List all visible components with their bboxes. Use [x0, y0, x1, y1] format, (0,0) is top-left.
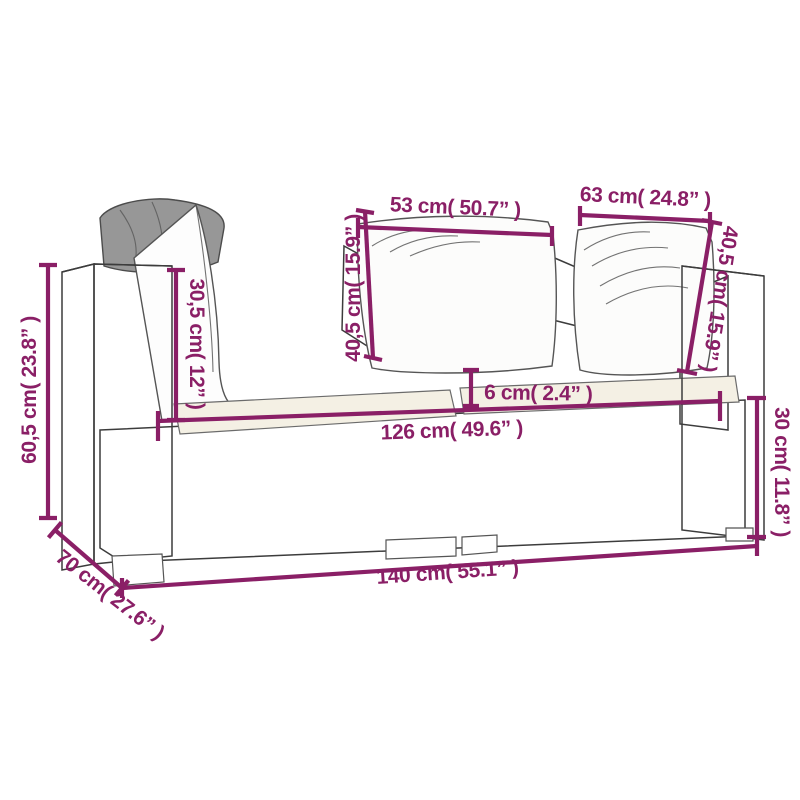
back-pillow-right — [574, 222, 714, 375]
sofa-drawing — [62, 199, 764, 586]
sofa-foot — [462, 535, 497, 555]
dimension-line-seat-width-right — [580, 215, 710, 221]
dimension-label-base-height: 30 cm( 11.8” ) — [770, 407, 793, 537]
sofa-foot — [112, 554, 164, 586]
dimension-label-inner-width: 126 cm( 49.6” ) — [380, 417, 523, 445]
dimension-label-armrest-height: 30,5 cm( 12” ) — [185, 279, 208, 410]
diagram-canvas: 53 cm( 50.7” ) 63 cm( 24.8” ) 30,5 cm( 1… — [0, 0, 800, 800]
dimension-label-back-height-center: 40,5 cm( 15.9” ) — [342, 214, 365, 362]
dimension-label-overall-height: 60,5 cm( 23.8” ) — [18, 316, 41, 464]
sofa-foot — [386, 537, 456, 559]
left-armrest-side-face — [62, 264, 94, 570]
dimension-label-cushion-thickness: 6 cm( 2.4” ) — [484, 381, 593, 406]
product-dimension-diagram: 53 cm( 50.7” ) 63 cm( 24.8” ) 30,5 cm( 1… — [0, 0, 800, 800]
dimension-label-seat-width-right: 63 cm( 24.8” ) — [579, 183, 711, 212]
back-pillow-center — [358, 216, 557, 373]
dimension-label-overall-width: 140 cm( 55.1” ) — [376, 556, 520, 589]
